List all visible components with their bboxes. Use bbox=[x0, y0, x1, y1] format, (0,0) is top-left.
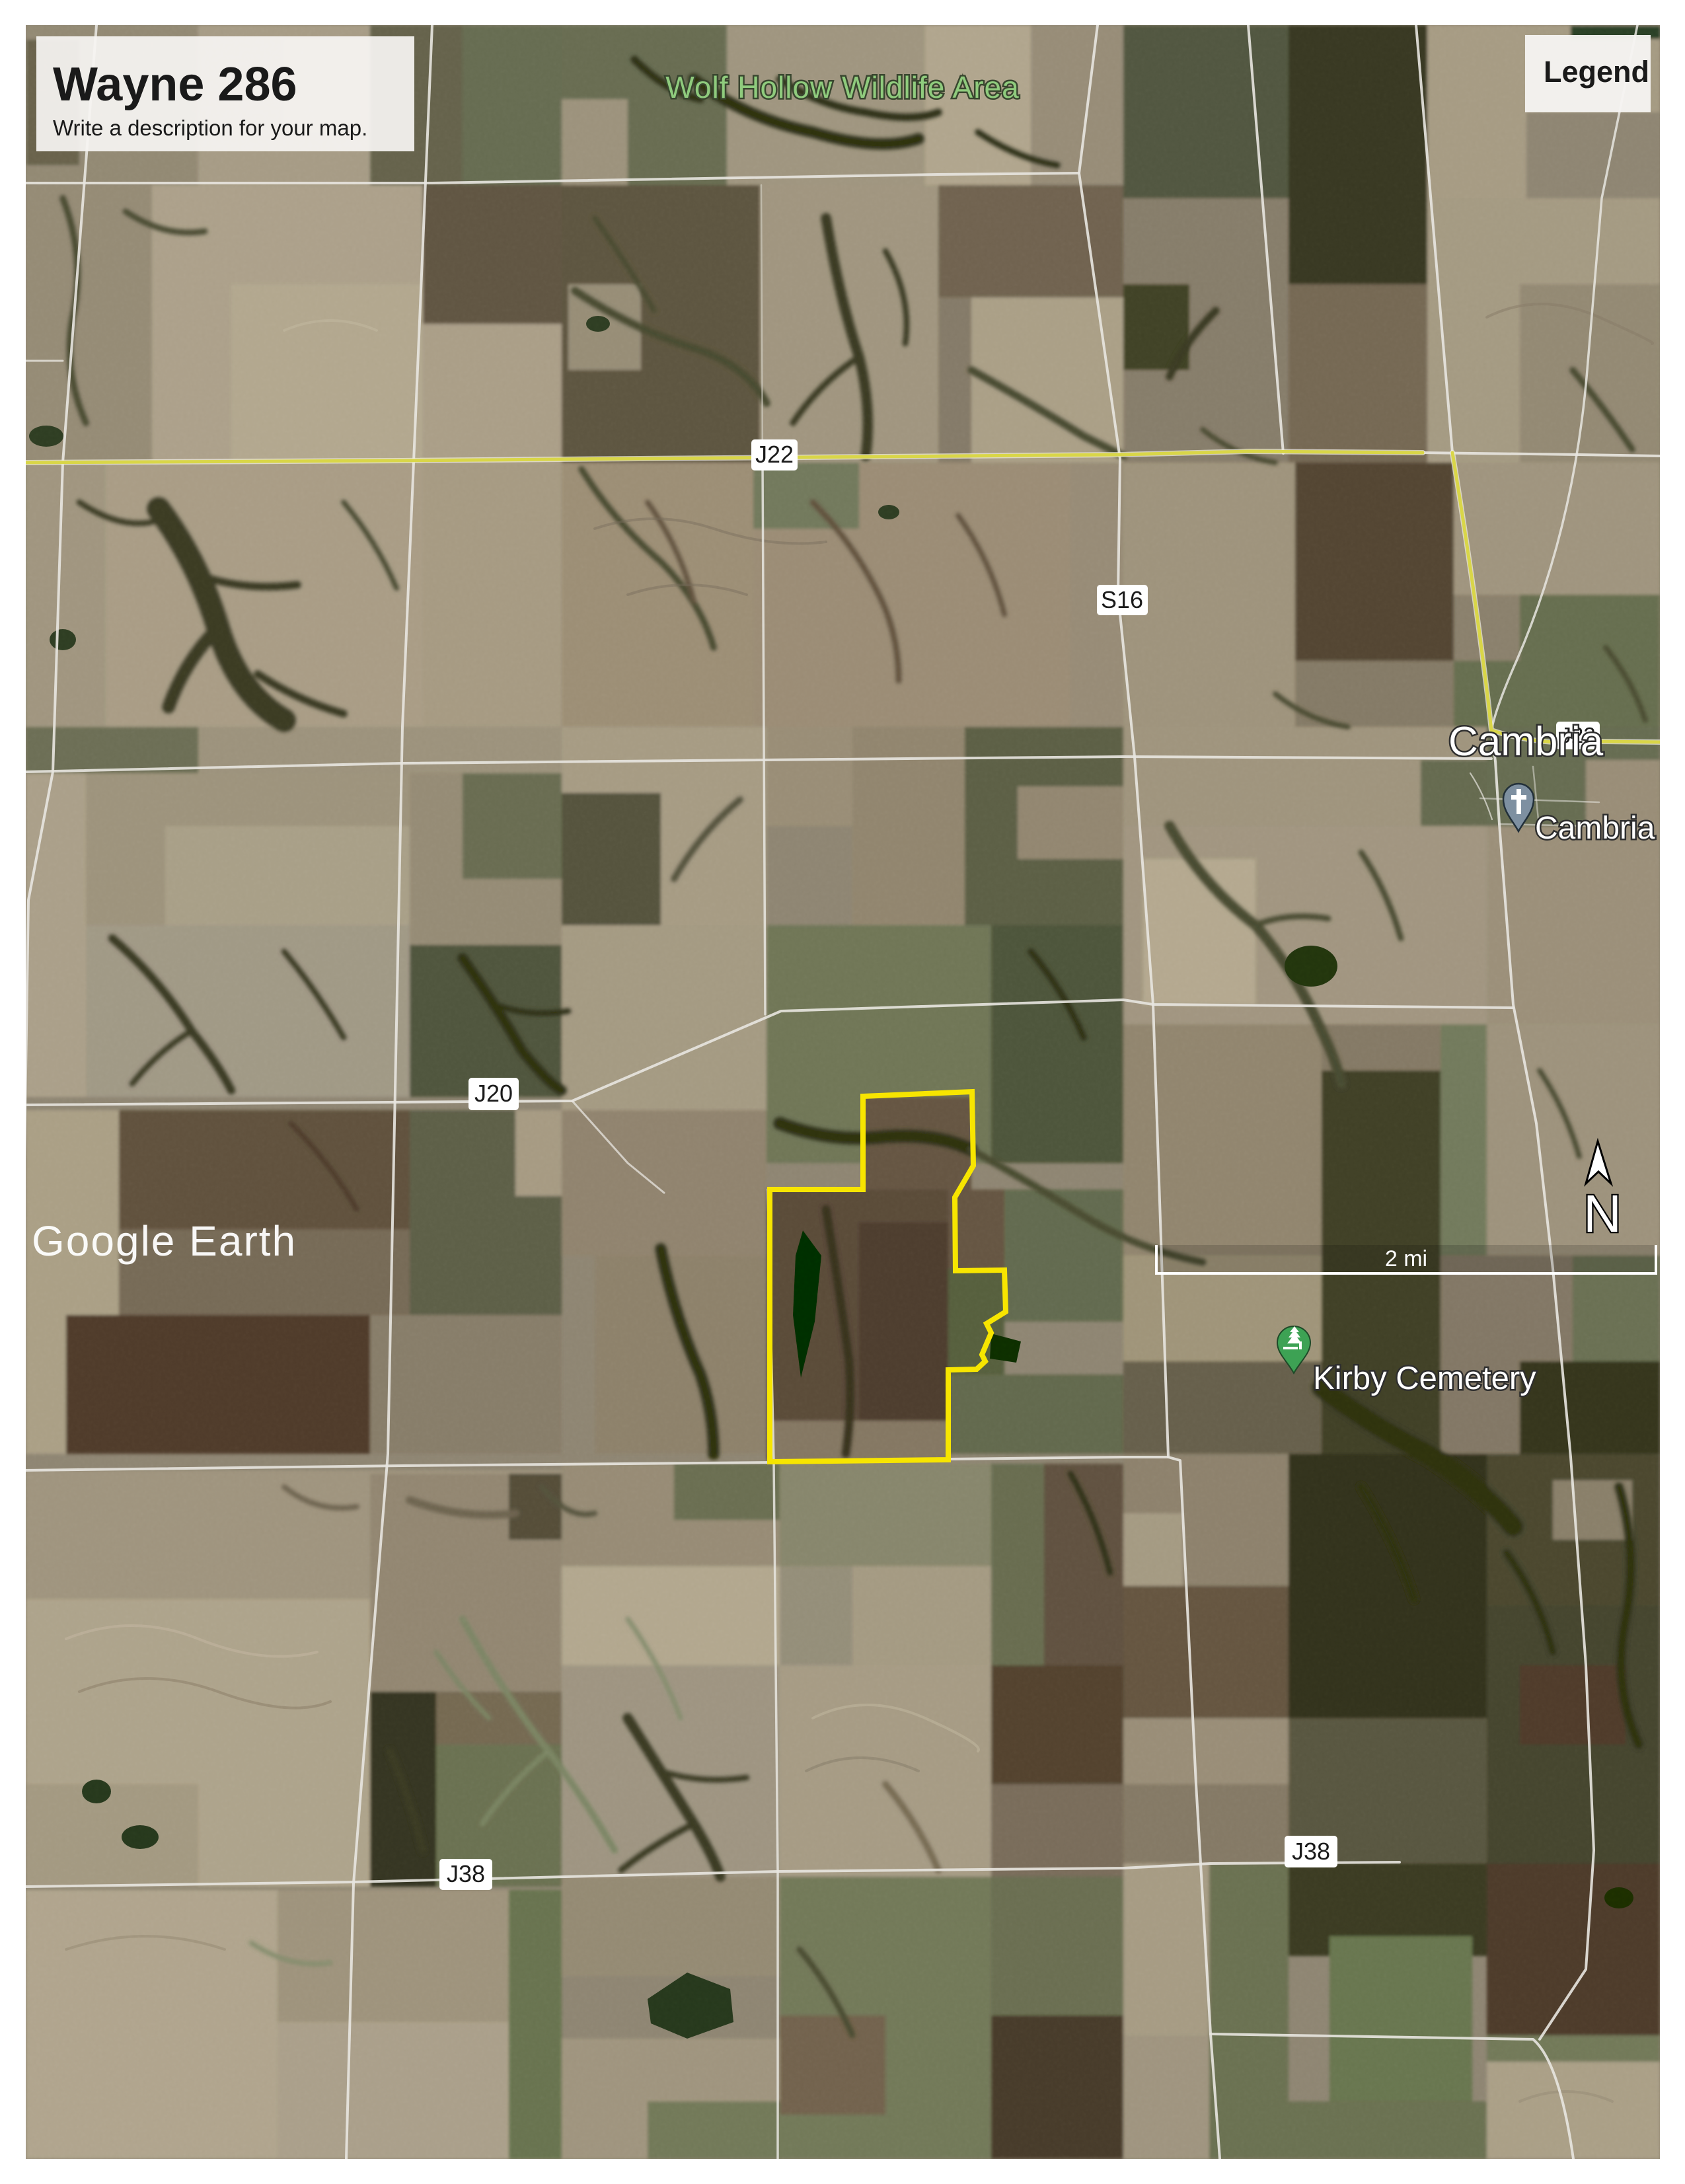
svg-text:2 mi: 2 mi bbox=[1385, 1246, 1427, 1271]
svg-text:J20: J20 bbox=[474, 1080, 513, 1107]
svg-text:Kirby Cemetery: Kirby Cemetery bbox=[1313, 1361, 1536, 1396]
svg-text:J38: J38 bbox=[447, 1860, 485, 1887]
svg-text:Cambria: Cambria bbox=[1448, 719, 1604, 765]
svg-text:N: N bbox=[1583, 1184, 1622, 1243]
svg-text:S16: S16 bbox=[1101, 586, 1143, 613]
svg-text:J22: J22 bbox=[755, 441, 794, 468]
svg-text:Wayne 286: Wayne 286 bbox=[53, 58, 297, 111]
svg-text:J38: J38 bbox=[1292, 1838, 1330, 1865]
svg-text:Write a description for your m: Write a description for your map. bbox=[53, 116, 367, 140]
svg-text:Google Earth: Google Earth bbox=[32, 1217, 297, 1265]
svg-text:Legend: Legend bbox=[1544, 55, 1649, 89]
svg-text:Wolf Hollow Wildlife Area: Wolf Hollow Wildlife Area bbox=[665, 70, 1019, 104]
